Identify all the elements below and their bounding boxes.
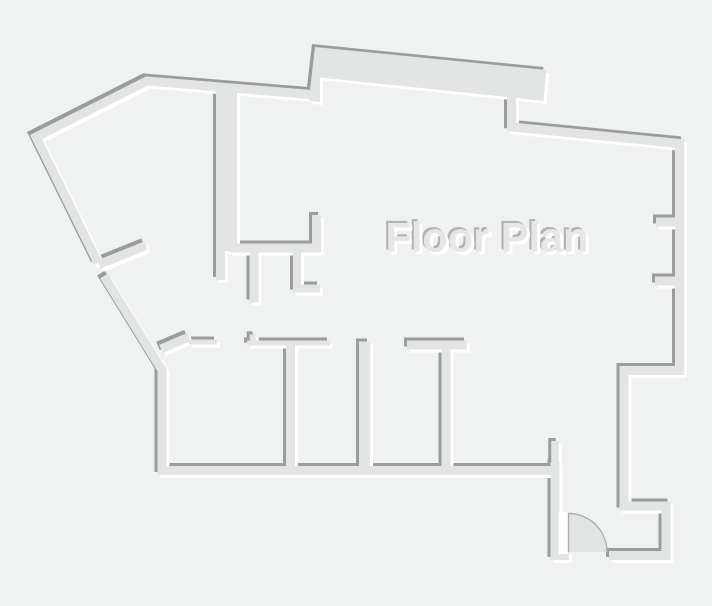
- svg-text:Floor Plan: Floor Plan: [386, 213, 589, 260]
